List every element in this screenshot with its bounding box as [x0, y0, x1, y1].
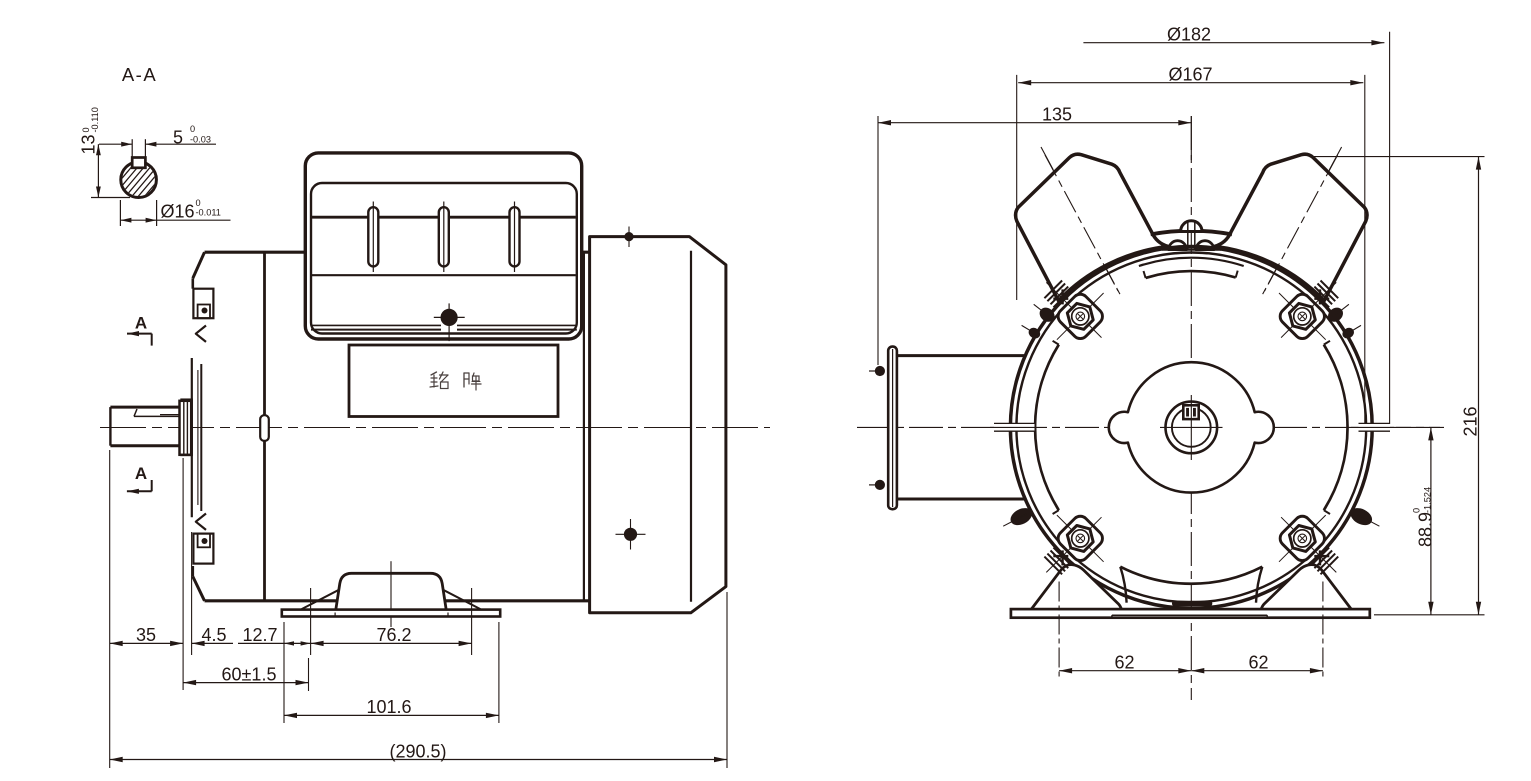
svg-text:62: 62 [1248, 653, 1268, 673]
svg-text:0: 0 [1412, 508, 1422, 513]
svg-text:5: 5 [173, 128, 183, 148]
svg-text:101.6: 101.6 [366, 697, 411, 717]
svg-text:Ø16: Ø16 [160, 202, 194, 222]
svg-text:A: A [135, 464, 147, 483]
svg-text:4.5: 4.5 [201, 625, 226, 645]
svg-text:12.7: 12.7 [242, 625, 277, 645]
svg-text:-0.03: -0.03 [190, 135, 211, 145]
svg-text:Ø182: Ø182 [1167, 25, 1211, 45]
svg-text:13: 13 [79, 134, 99, 154]
svg-text:-1.524: -1.524 [1423, 487, 1433, 513]
svg-text:216: 216 [1460, 406, 1480, 436]
svg-text:(290.5): (290.5) [389, 741, 446, 761]
svg-text:-0.011: -0.011 [196, 208, 221, 218]
svg-text:35: 35 [136, 625, 156, 645]
svg-text:76.2: 76.2 [376, 625, 411, 645]
svg-text:-0.110: -0.110 [90, 107, 100, 132]
svg-text:Ø167: Ø167 [1168, 65, 1212, 85]
svg-text:A: A [135, 314, 147, 333]
svg-text:0: 0 [190, 124, 195, 134]
svg-text:62: 62 [1114, 653, 1134, 673]
svg-text:135: 135 [1042, 105, 1072, 125]
svg-text:A-A: A-A [122, 64, 157, 85]
svg-text:0: 0 [196, 198, 201, 208]
svg-text:88.9: 88.9 [1416, 512, 1436, 547]
svg-text:60±1.5: 60±1.5 [222, 664, 277, 684]
